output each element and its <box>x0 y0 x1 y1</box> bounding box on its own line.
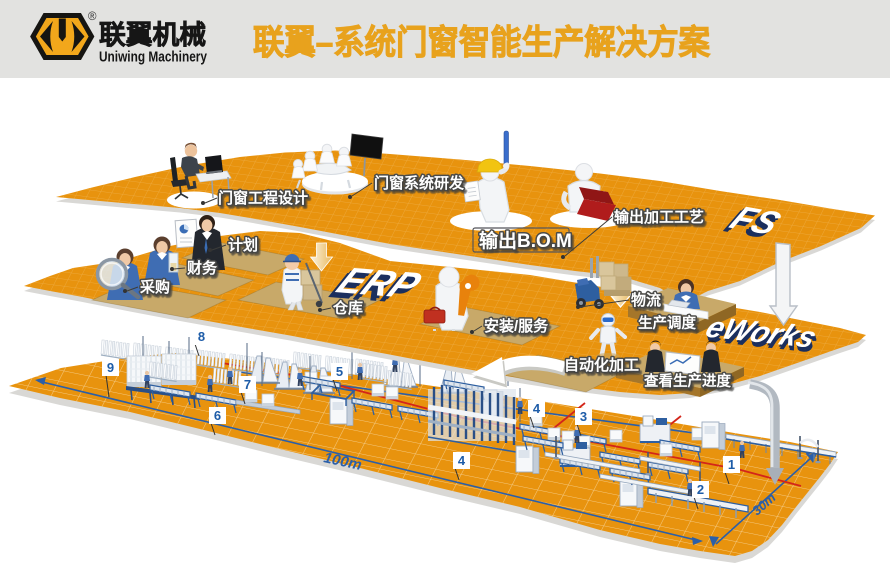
svg-text:自动化加工: 自动化加工 <box>564 356 639 374</box>
svg-text:查看生产进度: 查看生产进度 <box>644 372 731 390</box>
svg-text:财务: 财务 <box>187 259 218 277</box>
svg-text:门窗工程设计: 门窗工程设计 <box>218 189 308 207</box>
svg-text:9: 9 <box>107 360 114 375</box>
svg-text:8: 8 <box>198 329 205 344</box>
svg-text:生产调度: 生产调度 <box>638 314 696 332</box>
svg-text:4: 4 <box>458 453 466 468</box>
svg-text:联翼–系统门窗智能生产解决方案: 联翼–系统门窗智能生产解决方案 <box>253 24 711 62</box>
svg-text:5: 5 <box>336 364 343 379</box>
svg-text:采购: 采购 <box>139 278 170 296</box>
svg-text:4: 4 <box>533 401 541 416</box>
svg-text:计划: 计划 <box>228 236 258 254</box>
svg-text:物流: 物流 <box>631 291 661 309</box>
svg-text:仓库: 仓库 <box>332 299 363 317</box>
svg-text:6: 6 <box>214 408 221 423</box>
svg-text:3: 3 <box>580 409 587 424</box>
svg-text:®: ® <box>88 11 97 23</box>
svg-text:联翼机械: 联翼机械 <box>99 20 207 50</box>
svg-text:输出B.O.M: 输出B.O.M <box>479 229 572 252</box>
svg-text:门窗系统研发: 门窗系统研发 <box>374 174 465 192</box>
svg-text:安装/服务: 安装/服务 <box>484 317 549 335</box>
svg-text:2: 2 <box>697 482 704 497</box>
svg-text:1: 1 <box>728 457 735 472</box>
svg-text:输出加工工艺: 输出加工工艺 <box>614 208 704 226</box>
svg-text:Uniwing Machinery: Uniwing Machinery <box>99 49 208 66</box>
svg-text:7: 7 <box>244 377 251 392</box>
